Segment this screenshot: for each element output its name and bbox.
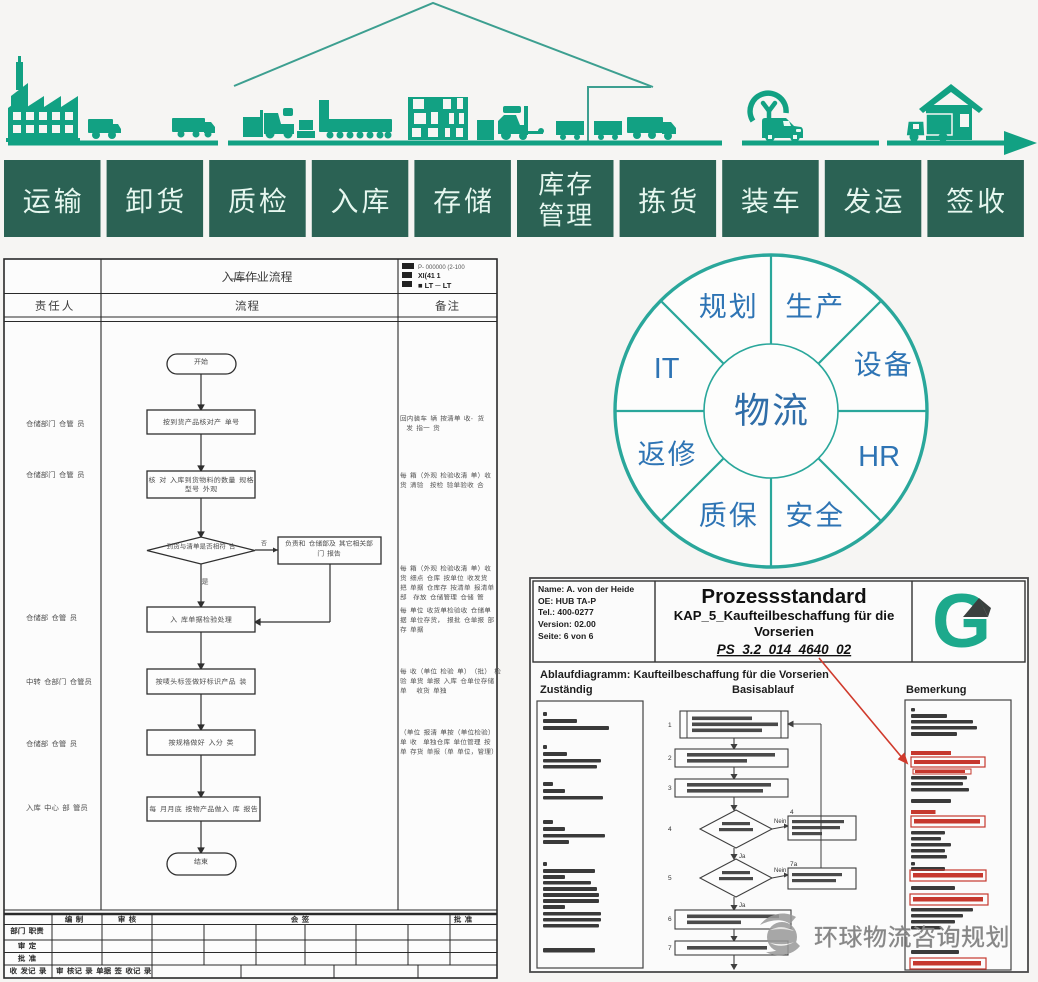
svg-text:Nein: Nein <box>774 819 786 825</box>
svg-text:Tel.: 400-0277: Tel.: 400-0277 <box>538 607 594 617</box>
svg-text:■ LT ─ LT: ■ LT ─ LT <box>418 281 452 290</box>
svg-text:4: 4 <box>790 809 794 816</box>
svg-text:P- 000000 (2-100: P- 000000 (2-100 <box>418 265 465 271</box>
svg-text:Seite: 6 von 6: Seite: 6 von 6 <box>538 631 594 641</box>
svg-text:Version: 02.00: Version: 02.00 <box>538 619 596 629</box>
svg-text:OE: HUB TA-P: OE: HUB TA-P <box>538 596 596 606</box>
svg-text:G: G <box>932 579 991 664</box>
svg-text:6: 6 <box>668 916 672 923</box>
svg-text:PS_3.2_014_4640_02: PS_3.2_014_4640_02 <box>717 642 852 657</box>
svg-text:Bemerkung: Bemerkung <box>906 684 967 696</box>
svg-text:Ja: Ja <box>739 854 746 860</box>
svg-text:Vorserien: Vorserien <box>754 624 814 639</box>
svg-text:Zuständig: Zuständig <box>540 684 593 696</box>
svg-text:Prozessstandard: Prozessstandard <box>701 585 866 608</box>
svg-text:Name: A. von der Heide: Name: A. von der Heide <box>538 584 634 594</box>
svg-text:XI(41 1: XI(41 1 <box>418 273 441 280</box>
svg-text:1: 1 <box>668 722 672 729</box>
svg-text:KAP_5_Kaufteilbeschaffung für: KAP_5_Kaufteilbeschaffung für die <box>674 608 895 623</box>
svg-text:Basisablauf: Basisablauf <box>732 684 794 696</box>
svg-text:4: 4 <box>668 826 672 833</box>
svg-text:3: 3 <box>668 785 672 792</box>
svg-text:IT: IT <box>654 353 680 385</box>
svg-text:2: 2 <box>668 755 672 762</box>
svg-text:Nein: Nein <box>774 868 786 874</box>
svg-text:HR: HR <box>858 441 900 473</box>
svg-text:7a: 7a <box>790 861 798 868</box>
svg-text:5: 5 <box>668 875 672 882</box>
svg-text:7: 7 <box>668 945 672 952</box>
svg-text:Ablaufdiagramm: Kaufteilbescha: Ablaufdiagramm: Kaufteilbeschaffung für … <box>540 669 829 681</box>
